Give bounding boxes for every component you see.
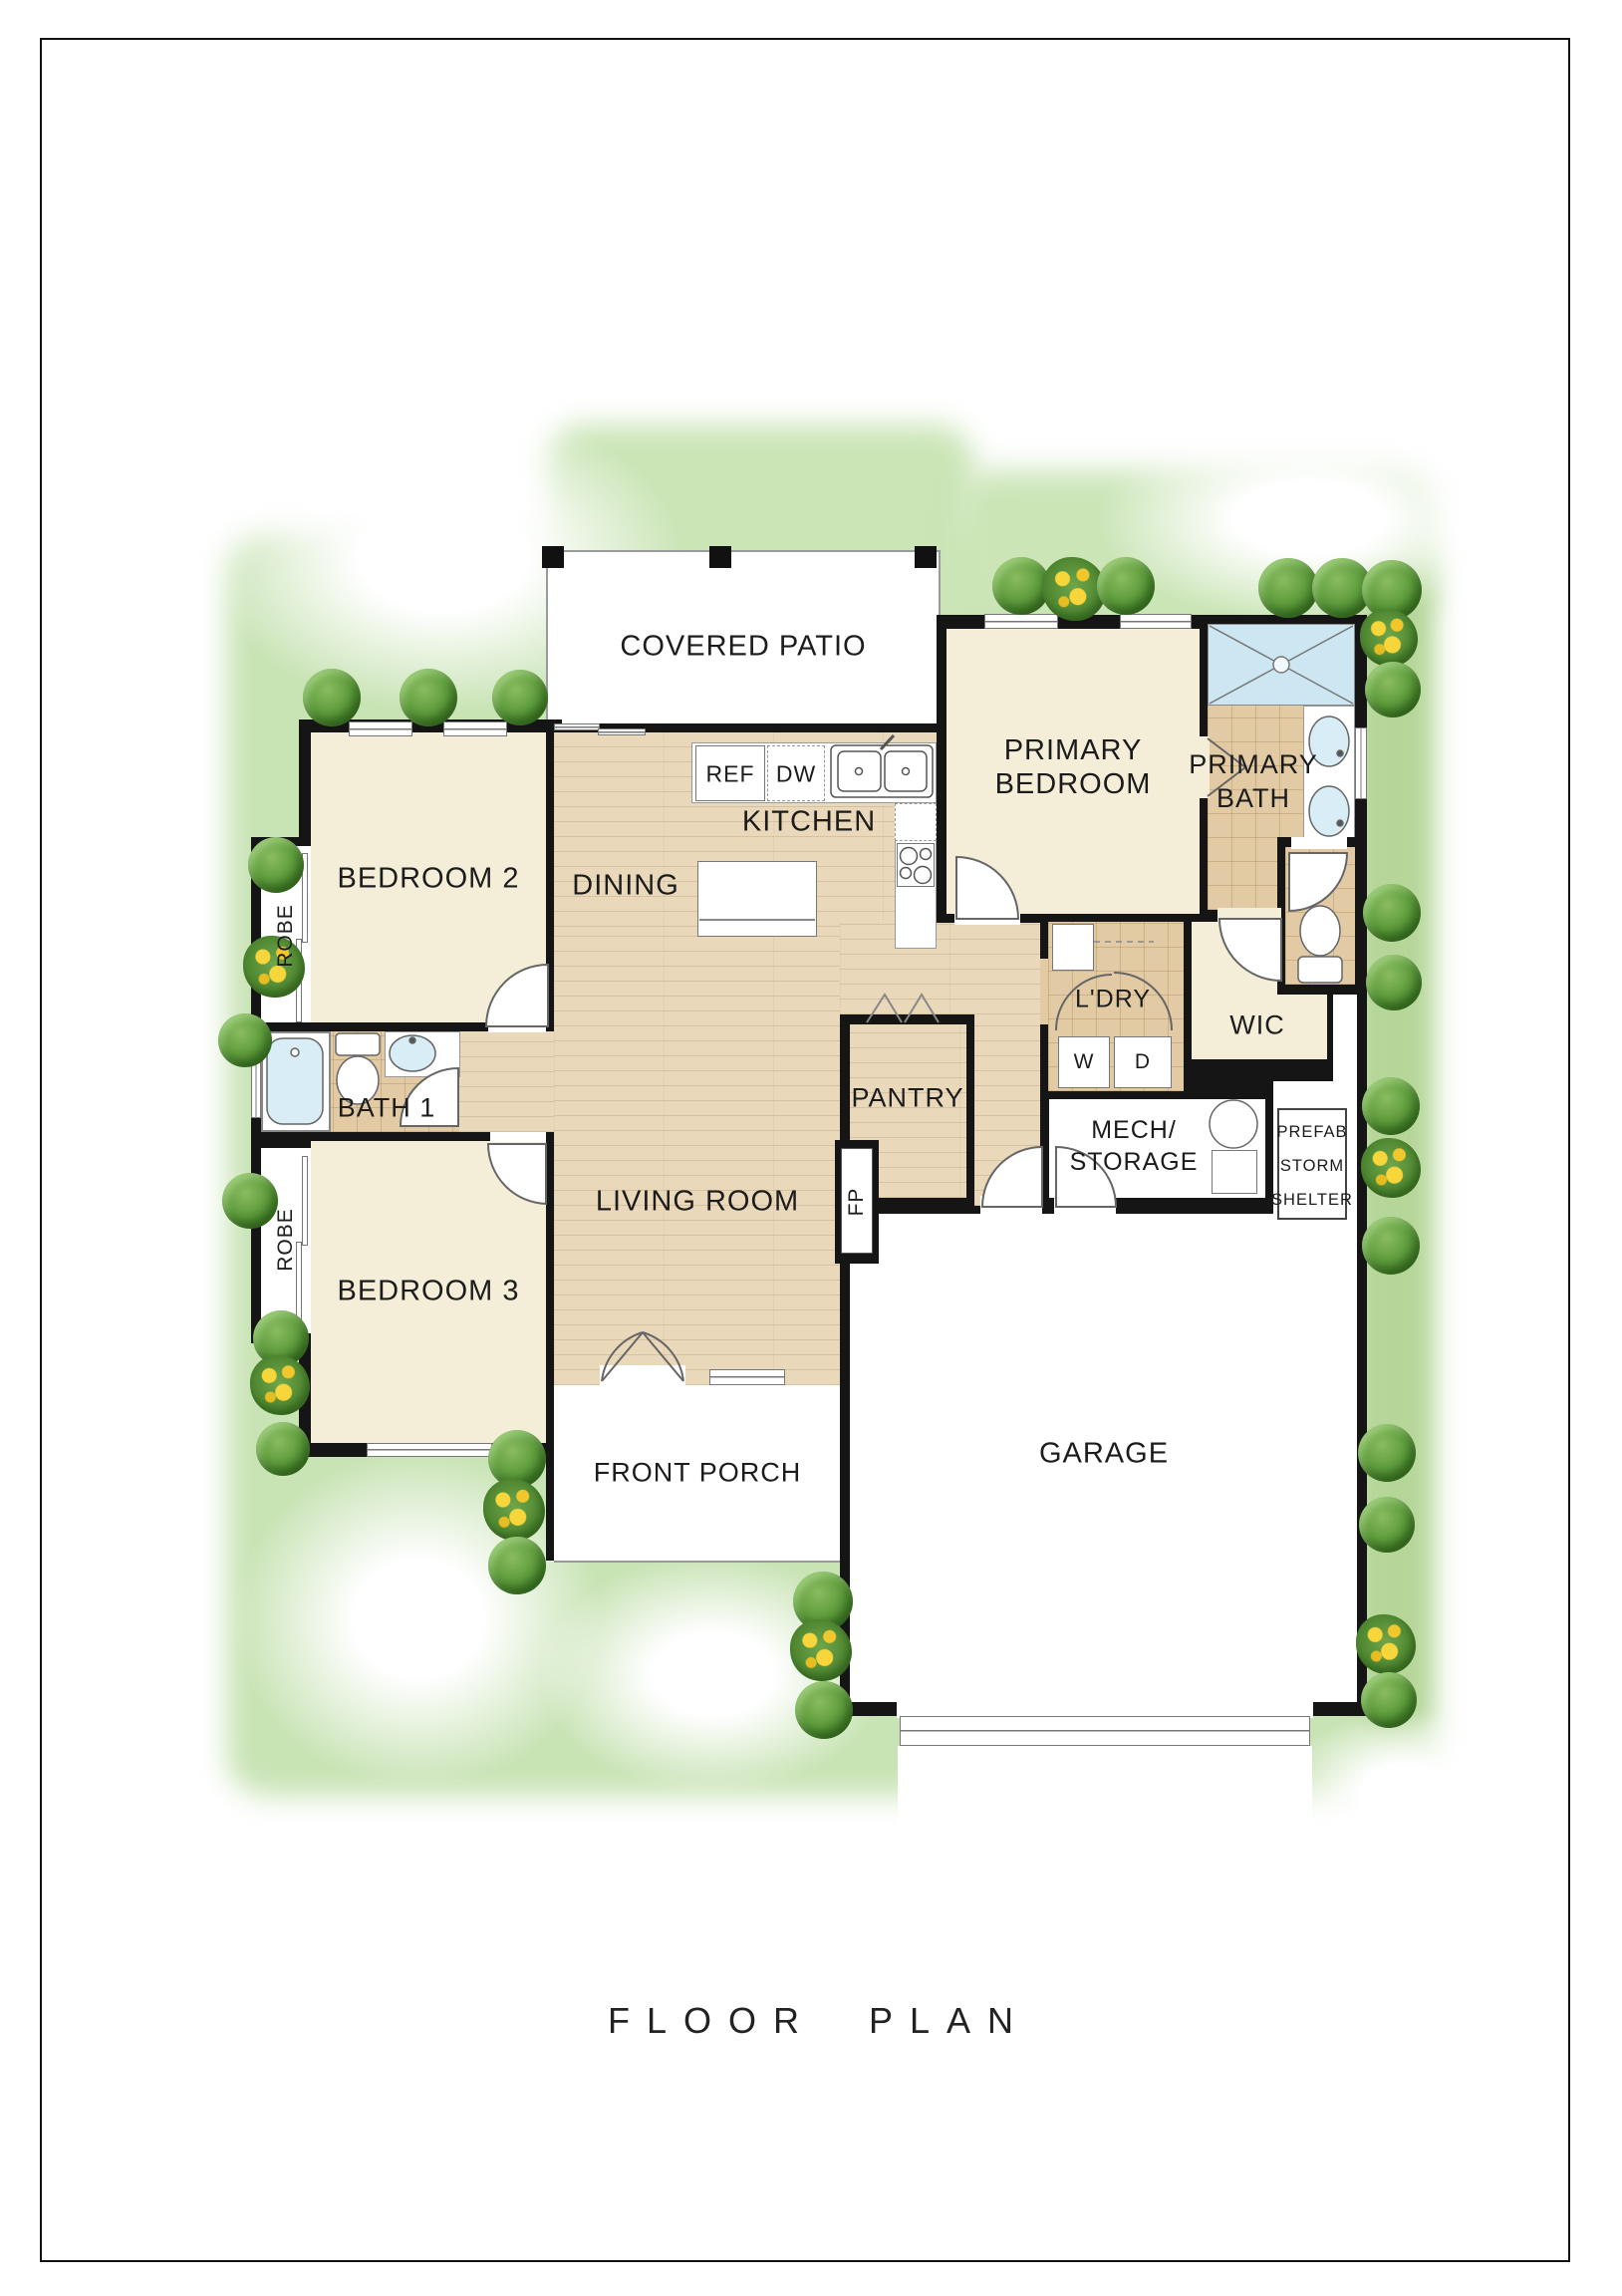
door-arc-primary-bedroom: [956, 857, 1018, 919]
door-arc-bedroom3: [488, 1144, 546, 1204]
label-laundry: L'DRY: [1075, 986, 1151, 1014]
label-bedroom3: BEDROOM 3: [337, 1276, 519, 1308]
door-arc-wc: [1289, 853, 1347, 911]
burner: [915, 867, 932, 884]
tree-icon: [248, 837, 304, 893]
burner: [901, 848, 918, 865]
tree-icon: [303, 669, 361, 726]
page-title: FLOOR PLAN: [608, 2000, 1030, 2042]
label-line: SHELTER: [1271, 1183, 1353, 1217]
sunflower-shrub-icon: [1356, 1614, 1416, 1674]
label-line: PREFAB: [1271, 1115, 1353, 1149]
tree-icon: [1361, 1672, 1417, 1728]
tree-icon: [488, 1537, 546, 1594]
label-bath1: BATH 1: [338, 1093, 436, 1124]
tree-icon: [222, 1173, 278, 1229]
label-dining: DINING: [572, 870, 679, 903]
tree-icon: [400, 669, 457, 726]
label-line: PRIMARY: [1189, 747, 1318, 781]
tree-icon: [1358, 1424, 1416, 1482]
tree-icon: [1363, 884, 1421, 942]
label-ref: REF: [706, 761, 755, 788]
toilet-tank-bath1: [336, 1033, 380, 1055]
tree-icon: [1258, 558, 1318, 618]
door-arc-garage-hall: [982, 1147, 1042, 1207]
label-line: STORAGE: [1070, 1146, 1199, 1178]
label-robe1: ROBE: [274, 904, 298, 968]
toilet-tank-wc: [1298, 957, 1342, 983]
water-heater: [1210, 1100, 1257, 1148]
toilet-bowl-wc: [1300, 906, 1340, 956]
sunflower-shrub-icon: [250, 1355, 310, 1415]
label-line: PRIMARY: [995, 733, 1152, 767]
label-washer: W: [1074, 1050, 1095, 1074]
tree-icon: [1366, 955, 1422, 1010]
tree-icon: [1359, 1497, 1415, 1553]
entry-door-leaf: [602, 1332, 643, 1381]
sink-faucet: [1337, 750, 1343, 756]
label-line: STORM: [1271, 1149, 1353, 1183]
tree-icon: [1365, 662, 1421, 717]
label-covered-patio: COVERED PATIO: [620, 631, 866, 664]
kitchen-sink-unit: [831, 745, 933, 797]
tree-icon: [1362, 1077, 1420, 1135]
label-kitchen: KITCHEN: [742, 806, 876, 839]
sink-faucet: [1337, 820, 1343, 826]
label-dryer: D: [1135, 1050, 1151, 1074]
tree-icon: [218, 1013, 272, 1067]
sunflower-shrub-icon: [790, 1619, 852, 1681]
tree-icon: [795, 1681, 853, 1739]
label-pantry: PANTRY: [851, 1083, 963, 1114]
label-garage: GARAGE: [1039, 1438, 1169, 1471]
burner: [921, 849, 932, 860]
pantry-double-doors: [867, 995, 939, 1022]
burner: [901, 868, 912, 879]
label-robe2: ROBE: [274, 1208, 298, 1272]
shower-drain: [1273, 657, 1289, 673]
label-dw: DW: [776, 761, 816, 788]
tree-icon: [1097, 557, 1155, 615]
tree-icon: [256, 1422, 310, 1476]
label-bedroom2: BEDROOM 2: [337, 863, 519, 896]
tub-faucet: [291, 1048, 299, 1056]
sunflower-shrub-icon: [483, 1479, 545, 1541]
tree-icon: [492, 670, 548, 725]
sunflower-shrub-icon: [1361, 1138, 1421, 1198]
door-arc-wic: [1219, 919, 1281, 981]
tree-icon: [1362, 1217, 1420, 1275]
label-line: BEDROOM: [995, 767, 1152, 801]
label-line: MECH/: [1070, 1114, 1199, 1146]
sunflower-shrub-icon: [1360, 609, 1418, 667]
label-fp: FP: [845, 1188, 869, 1217]
label-wic: WIC: [1229, 1010, 1284, 1041]
entry-door-leaf: [643, 1332, 683, 1381]
label-line: BATH: [1189, 781, 1318, 815]
sink-faucet: [409, 1037, 415, 1043]
label-primary-bedroom: PRIMARY BEDROOM: [995, 733, 1152, 801]
label-primary-bath: PRIMARY BATH: [1189, 747, 1318, 815]
label-front-porch: FRONT PORCH: [594, 1458, 802, 1489]
label-mech-storage: MECH/ STORAGE: [1070, 1114, 1199, 1178]
floor-plan-page: COVERED PATIO BEDROOM 2 ROBE BATH 1 ROBE…: [0, 0, 1622, 2296]
label-storm-shelter: PREFAB STORM SHELTER: [1271, 1115, 1353, 1217]
door-arc-bedroom2: [486, 965, 548, 1026]
label-living-room: LIVING ROOM: [596, 1186, 799, 1219]
